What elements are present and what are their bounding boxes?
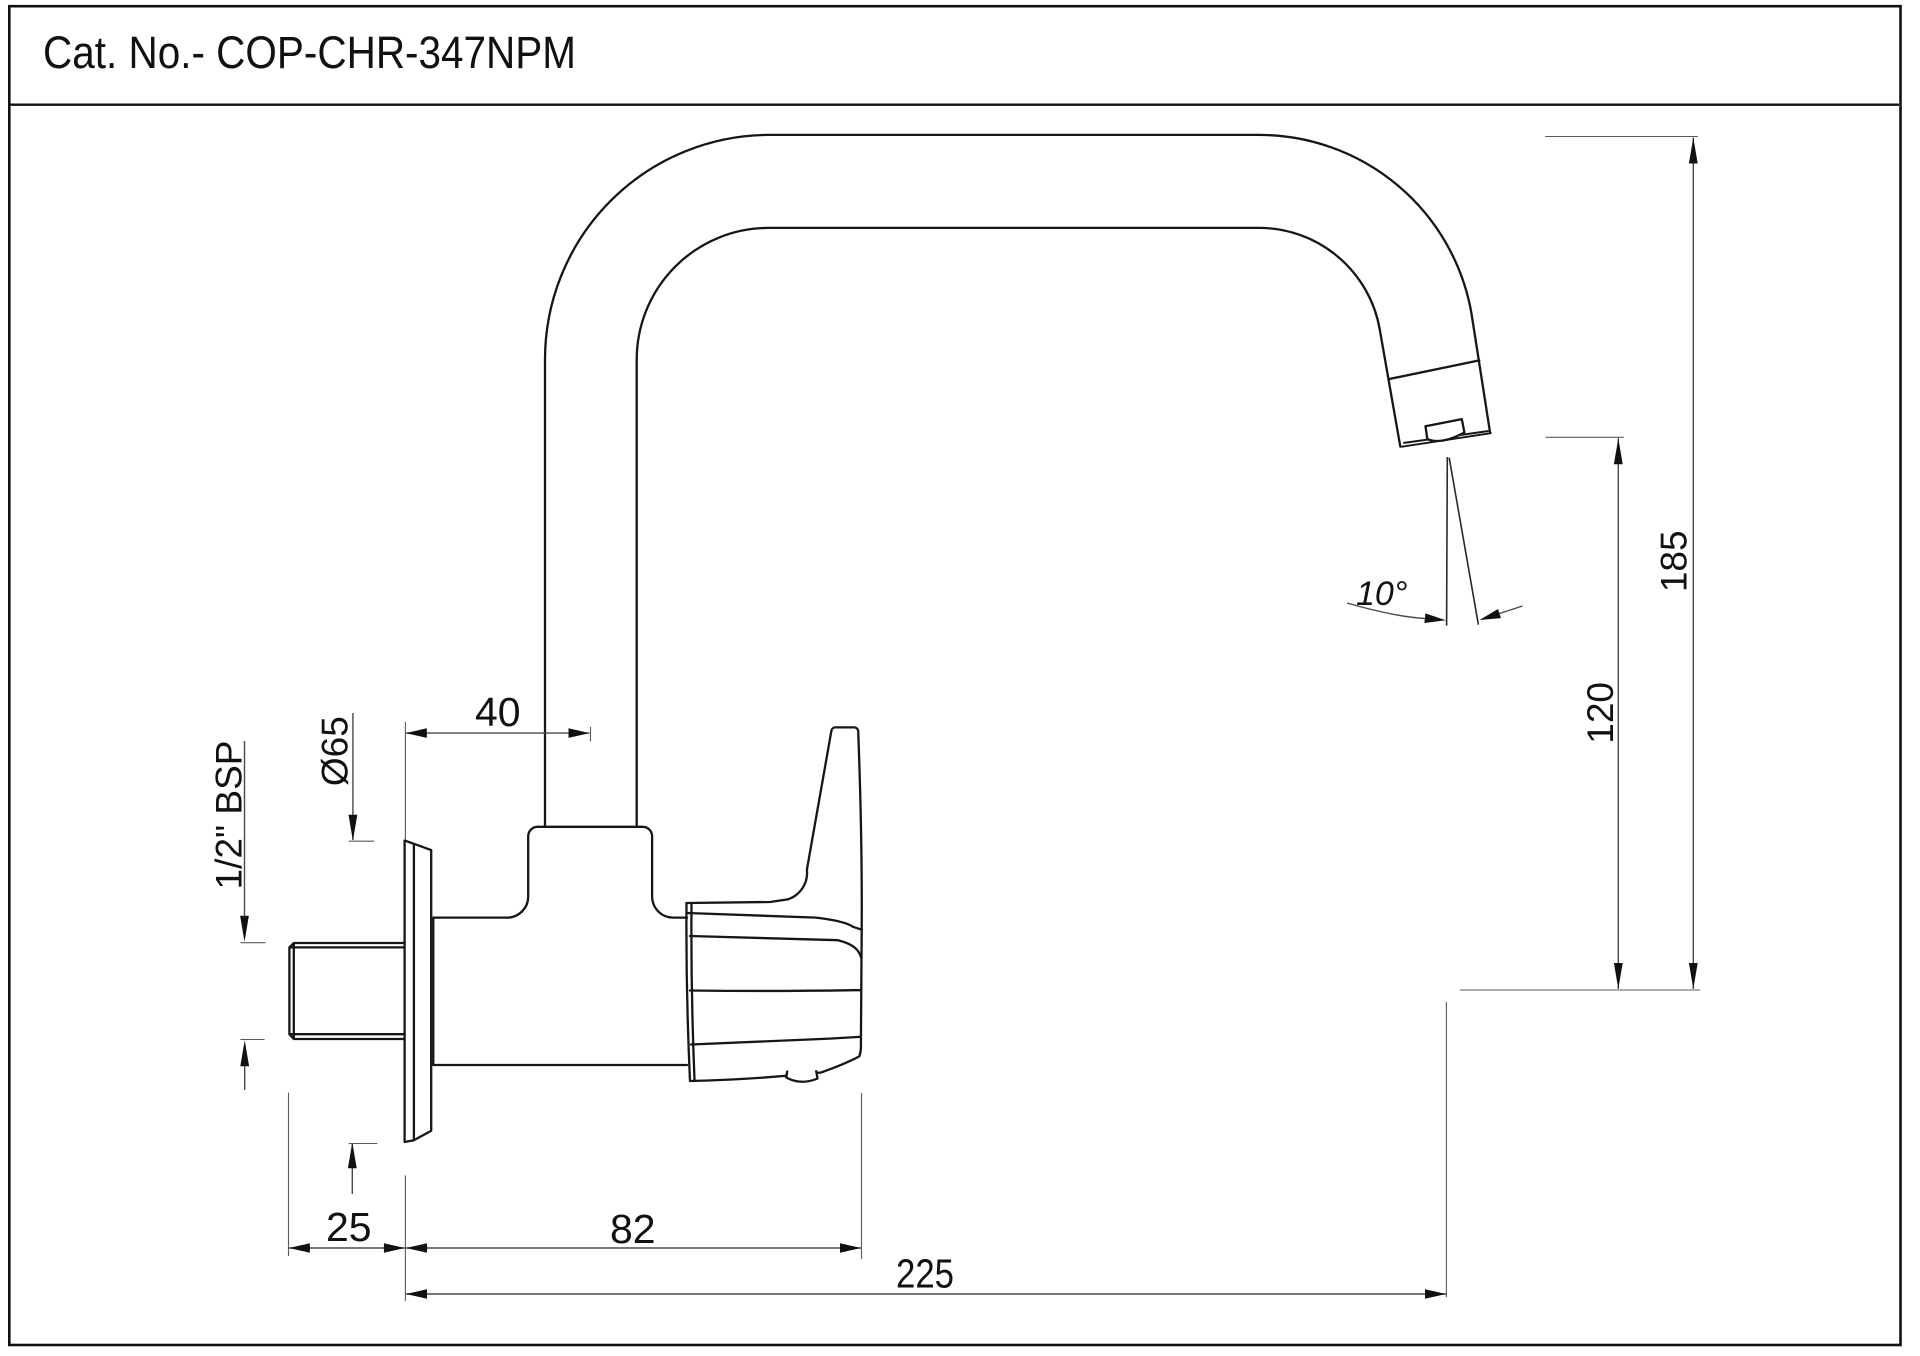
svg-text:10°: 10°	[1356, 575, 1407, 613]
svg-text:25: 25	[326, 1204, 372, 1250]
svg-text:1/2" BSP: 1/2" BSP	[209, 741, 250, 890]
svg-text:40: 40	[475, 689, 521, 735]
svg-text:Cat. No.- COP-CHR-347NPM: Cat. No.- COP-CHR-347NPM	[43, 27, 576, 78]
svg-text:185: 185	[1653, 530, 1694, 592]
svg-text:82: 82	[610, 1206, 656, 1252]
svg-text:Ø65: Ø65	[315, 716, 356, 786]
svg-text:120: 120	[1580, 682, 1621, 744]
svg-text:225: 225	[896, 1251, 954, 1297]
